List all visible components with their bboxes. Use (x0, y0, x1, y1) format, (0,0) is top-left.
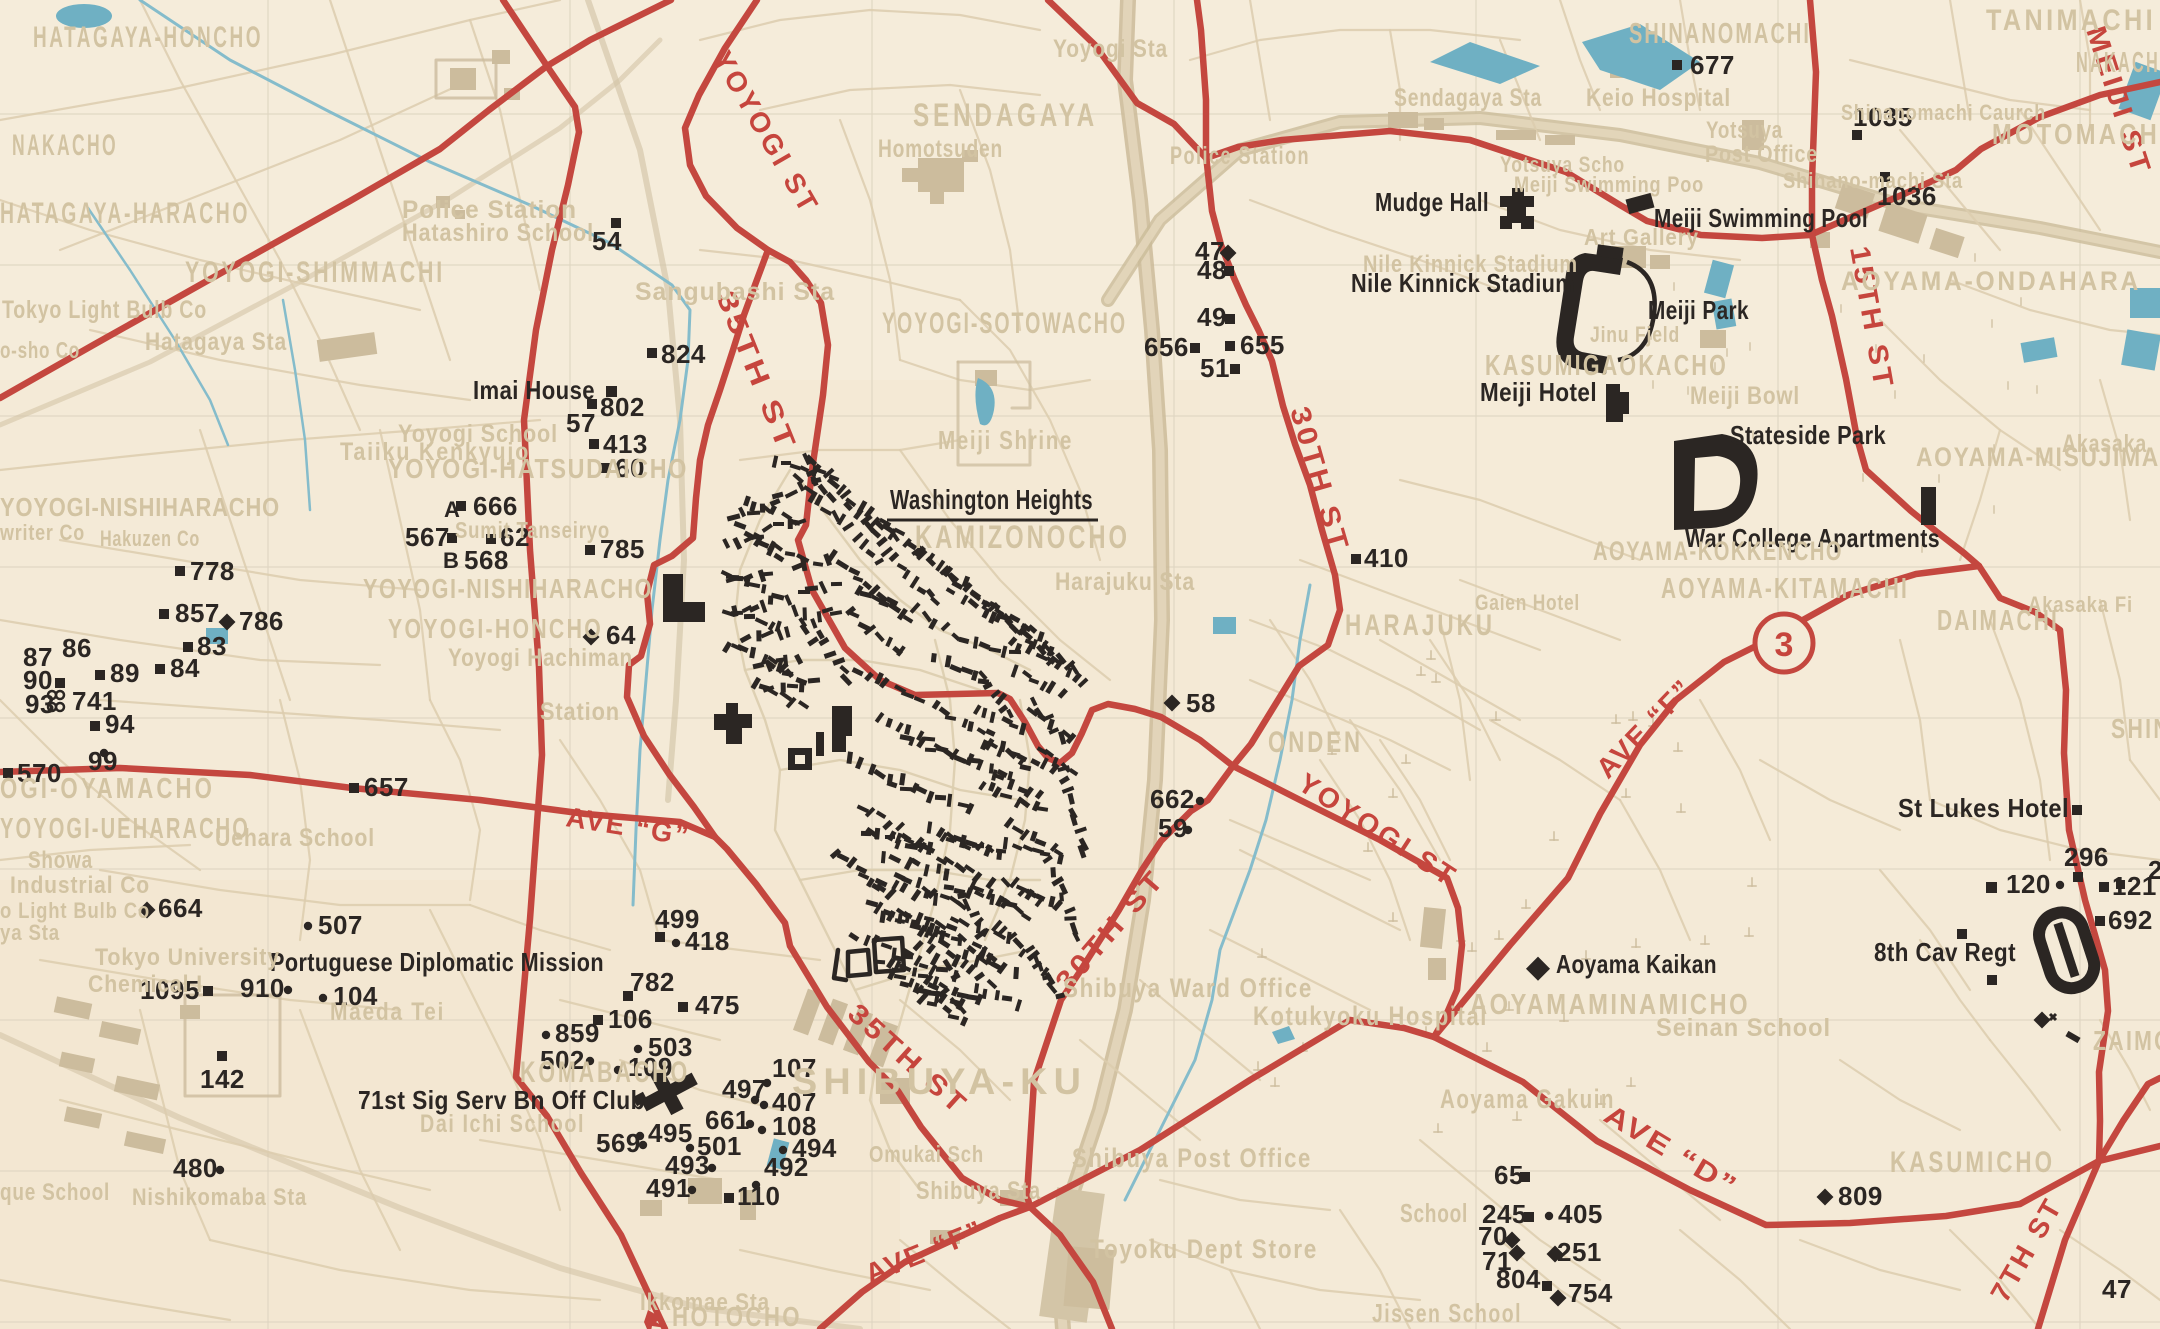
svg-text:Akasaka: Akasaka (2062, 430, 2147, 458)
svg-text:491: 491 (646, 1173, 691, 1203)
svg-text:Tokyo Light Bulb Co: Tokyo Light Bulb Co (2, 296, 207, 324)
svg-text:84: 84 (170, 653, 200, 683)
svg-text:Kotukyoku Hospital: Kotukyoku Hospital (1253, 1001, 1488, 1031)
svg-text:Chemical I: Chemical I (88, 971, 203, 998)
svg-text:2: 2 (2148, 855, 2160, 885)
svg-text:TANIMACHI: TANIMACHI (1986, 4, 2156, 37)
svg-text:657: 657 (364, 772, 409, 802)
svg-text:106: 106 (608, 1004, 653, 1034)
svg-text:HATAGAYA-HONCHO: HATAGAYA-HONCHO (33, 21, 263, 54)
svg-text:809: 809 (1838, 1181, 1883, 1211)
svg-text:YOYOGI-NISHIHARACHO: YOYOGI-NISHIHARACHO (363, 573, 653, 604)
svg-text:Station: Station (540, 698, 620, 726)
svg-text:Hakuzen Co: Hakuzen Co (100, 526, 200, 551)
svg-text:8th Cav Regt: 8th Cav Regt (1874, 937, 2016, 967)
svg-text:495: 495 (648, 1118, 693, 1148)
svg-text:142: 142 (200, 1064, 245, 1094)
svg-text:Nishikomaba Sta: Nishikomaba Sta (132, 1184, 307, 1211)
svg-text:YOYOGI-NISHIHARACHO: YOYOGI-NISHIHARACHO (0, 492, 280, 522)
svg-text:47: 47 (2102, 1274, 2132, 1304)
svg-text:804: 804 (1496, 1264, 1541, 1294)
svg-text:Uehara School: Uehara School (215, 824, 375, 852)
svg-text:Washington Heights: Washington Heights (890, 484, 1093, 515)
svg-text:Police Station: Police Station (1170, 142, 1310, 170)
svg-text:KAMIZONOCHO: KAMIZONOCHO (915, 519, 1130, 555)
svg-text:110: 110 (737, 1181, 780, 1211)
svg-text:120: 120 (2006, 869, 2051, 899)
svg-text:ZAIMO: ZAIMO (2093, 1025, 2160, 1056)
svg-text:3: 3 (1775, 626, 1794, 664)
svg-text:664: 664 (158, 893, 203, 923)
svg-text:Meiji Shrine: Meiji Shrine (938, 425, 1073, 455)
svg-text:AOYAMA-KITAMACHI: AOYAMA-KITAMACHI (1661, 573, 1909, 605)
svg-text:Harajuku Sta: Harajuku Sta (1055, 568, 1195, 596)
svg-text:Seinan School: Seinan School (1656, 1014, 1831, 1042)
svg-text:Toyoku Dept Store: Toyoku Dept Store (1090, 1234, 1318, 1264)
svg-text:778: 778 (190, 556, 235, 586)
svg-text:Dai Ichi School: Dai Ichi School (420, 1110, 585, 1138)
svg-text:KOMABACHO: KOMABACHO (520, 1056, 690, 1089)
svg-text:Sendagaya Sta: Sendagaya Sta (1394, 84, 1542, 112)
svg-text:754: 754 (1568, 1278, 1613, 1308)
svg-text:Shibuya Ward Office: Shibuya Ward Office (1063, 973, 1313, 1003)
svg-text:Omukai Sch: Omukai Sch (869, 1141, 984, 1167)
svg-text:School: School (1400, 1198, 1468, 1228)
svg-text:Hatagaya Sta: Hatagaya Sta (145, 328, 287, 356)
svg-text:786: 786 (239, 606, 284, 636)
svg-text:Meiji Bowl: Meiji Bowl (1690, 382, 1800, 410)
svg-text:Jinu Fjeld: Jinu Fjeld (1590, 322, 1680, 347)
svg-text:569: 569 (596, 1128, 641, 1158)
svg-text:OGI-OYAMACHO: OGI-OYAMACHO (0, 773, 215, 805)
svg-text:59: 59 (1158, 813, 1188, 843)
svg-text:YOYOGI-SHIMMACHI: YOYOGI-SHIMMACHI (185, 256, 445, 289)
svg-text:692: 692 (2108, 905, 2153, 935)
svg-text:HARAJUKU: HARAJUKU (1345, 609, 1495, 642)
svg-text:655: 655 (1240, 330, 1285, 360)
svg-text:89: 89 (110, 658, 140, 688)
svg-text:Yoyogi Sta: Yoyogi Sta (1053, 35, 1168, 63)
svg-text:418: 418 (685, 926, 730, 956)
svg-text:Aoyama Kaikan: Aoyama Kaikan (1556, 949, 1717, 979)
svg-text:Meiji Park: Meiji Park (1648, 295, 1749, 325)
svg-text:YOYOGI-HONCHO: YOYOGI-HONCHO (388, 613, 603, 644)
svg-text:58: 58 (1186, 688, 1216, 718)
svg-text:HOTOCHO: HOTOCHO (672, 1301, 802, 1329)
svg-text:910: 910 (240, 973, 285, 1003)
svg-text:NAKACH: NAKACH (2076, 47, 2160, 79)
svg-text:Post Office: Post Office (1705, 141, 1818, 168)
svg-text:49: 49 (1197, 302, 1227, 332)
svg-text:SENDAGAYA: SENDAGAYA (913, 97, 1098, 133)
svg-text:Shinano-machi Sta: Shinano-machi Sta (1783, 168, 1963, 193)
svg-text:Sangubashi Sta: Sangubashi Sta (635, 278, 835, 306)
svg-text:ONDEN: ONDEN (1268, 726, 1363, 759)
svg-text:802: 802 (600, 392, 645, 422)
svg-text:65: 65 (1494, 1160, 1524, 1190)
svg-text:St Lukes Hotel: St Lukes Hotel (1898, 793, 2069, 823)
svg-text:Jissen School: Jissen School (1372, 1298, 1522, 1328)
svg-text:SHIBUYA-KU: SHIBUYA-KU (792, 1061, 1087, 1102)
svg-text:KASUMIGAOKACHO: KASUMIGAOKACHO (1485, 350, 1728, 382)
svg-text:251: 251 (1557, 1237, 1602, 1267)
svg-text:Mudge Hall: Mudge Hall (1375, 187, 1489, 217)
svg-text:Portuguese Diplomatic Mission: Portuguese Diplomatic Mission (270, 947, 604, 977)
svg-text:Nile Kinnick Stadium: Nile Kinnick Stadium (1363, 251, 1578, 278)
svg-text:YOYOGI-UEHARACHO: YOYOGI-UEHARACHO (0, 813, 250, 845)
svg-text:Homotsuden: Homotsuden (878, 135, 1003, 163)
svg-text:Meiji Swimming Poo: Meiji Swimming Poo (1514, 172, 1704, 197)
svg-text:que School: que School (0, 1179, 110, 1206)
svg-text:AOYAMA-ONDAHARA: AOYAMA-ONDAHARA (1841, 266, 2141, 296)
svg-text:480: 480 (173, 1153, 218, 1183)
svg-text:Yoyogi School: Yoyogi School (398, 420, 558, 448)
svg-text:Yoyogi Hachiman: Yoyogi Hachiman (448, 644, 633, 672)
svg-text:HATAGAYA-HARACHO: HATAGAYA-HARACHO (0, 197, 250, 230)
svg-text:Stateside Park: Stateside Park (1730, 420, 1886, 450)
svg-text:656: 656 (1144, 332, 1189, 362)
svg-text:Akasaka Fi: Akasaka Fi (2028, 592, 2133, 617)
svg-text:Industrial Co: Industrial Co (10, 872, 150, 899)
svg-text:782: 782 (630, 967, 675, 997)
svg-text:SHIN: SHIN (2111, 713, 2160, 744)
svg-text:497: 497 (722, 1074, 767, 1104)
svg-text:MOTOMACH: MOTOMACH (1992, 119, 2160, 151)
svg-text:ya Sta: ya Sta (0, 920, 60, 945)
svg-text:Maeda Tei: Maeda Tei (330, 998, 445, 1026)
svg-text:Art Gallery: Art Gallery (1584, 224, 1699, 250)
svg-text:YOYOGI-HATSUDAICHO: YOYOGI-HATSUDAICHO (388, 453, 688, 484)
svg-text:Shibuya Sta: Shibuya Sta (916, 1177, 1041, 1205)
svg-text:86: 86 (62, 633, 92, 663)
svg-text:296: 296 (2064, 842, 2109, 872)
svg-text:859: 859 (555, 1018, 600, 1048)
svg-text:YOYOGI-SOTOWACHO: YOYOGI-SOTOWACHO (882, 307, 1127, 340)
svg-text:54: 54 (592, 226, 622, 256)
svg-text:Hatashiro School: Hatashiro School (402, 219, 594, 247)
svg-text:Keio Hospital: Keio Hospital (1586, 84, 1731, 112)
svg-text:o-sho Co: o-sho Co (0, 337, 80, 363)
svg-text:677: 677 (1690, 50, 1735, 80)
svg-text:Yotsuya: Yotsuya (1706, 117, 1783, 144)
svg-text:NAKACHO: NAKACHO (12, 129, 118, 162)
svg-text:475: 475 (695, 990, 740, 1020)
svg-text:57: 57 (566, 408, 596, 438)
svg-text:Shibuya Post Office: Shibuya Post Office (1072, 1143, 1312, 1173)
svg-text:Showa: Showa (28, 847, 93, 874)
svg-text:51: 51 (1200, 353, 1230, 383)
svg-text:857: 857 (175, 598, 220, 628)
svg-text:Aoyama Gakuin: Aoyama Gakuin (1440, 1084, 1615, 1114)
svg-text:Sumit Tanseiryo: Sumit Tanseiryo (455, 517, 610, 543)
svg-text:405: 405 (1558, 1199, 1603, 1229)
svg-text:410: 410 (1364, 543, 1409, 573)
svg-text:507: 507 (318, 910, 363, 940)
svg-text:AOYAMA-KOKKENCHO: AOYAMA-KOKKENCHO (1593, 536, 1843, 566)
svg-text:662: 662 (1150, 784, 1195, 814)
svg-text:Imai House: Imai House (473, 375, 595, 405)
svg-text:94: 94 (105, 709, 135, 739)
svg-text:KASUMICHO: KASUMICHO (1890, 1146, 2055, 1179)
svg-text:SHINANOMACHI: SHINANOMACHI (1629, 18, 1811, 50)
svg-text:Tokyo University: Tokyo University (95, 944, 280, 971)
svg-text:writer Co: writer Co (0, 520, 85, 545)
svg-text:Gaien Hotel: Gaien Hotel (1475, 590, 1580, 615)
svg-text:824: 824 (661, 339, 706, 369)
svg-text:83: 83 (197, 631, 227, 661)
svg-text:B: B (443, 548, 459, 573)
svg-text:492: 492 (764, 1152, 809, 1182)
svg-text:48: 48 (1197, 255, 1227, 285)
